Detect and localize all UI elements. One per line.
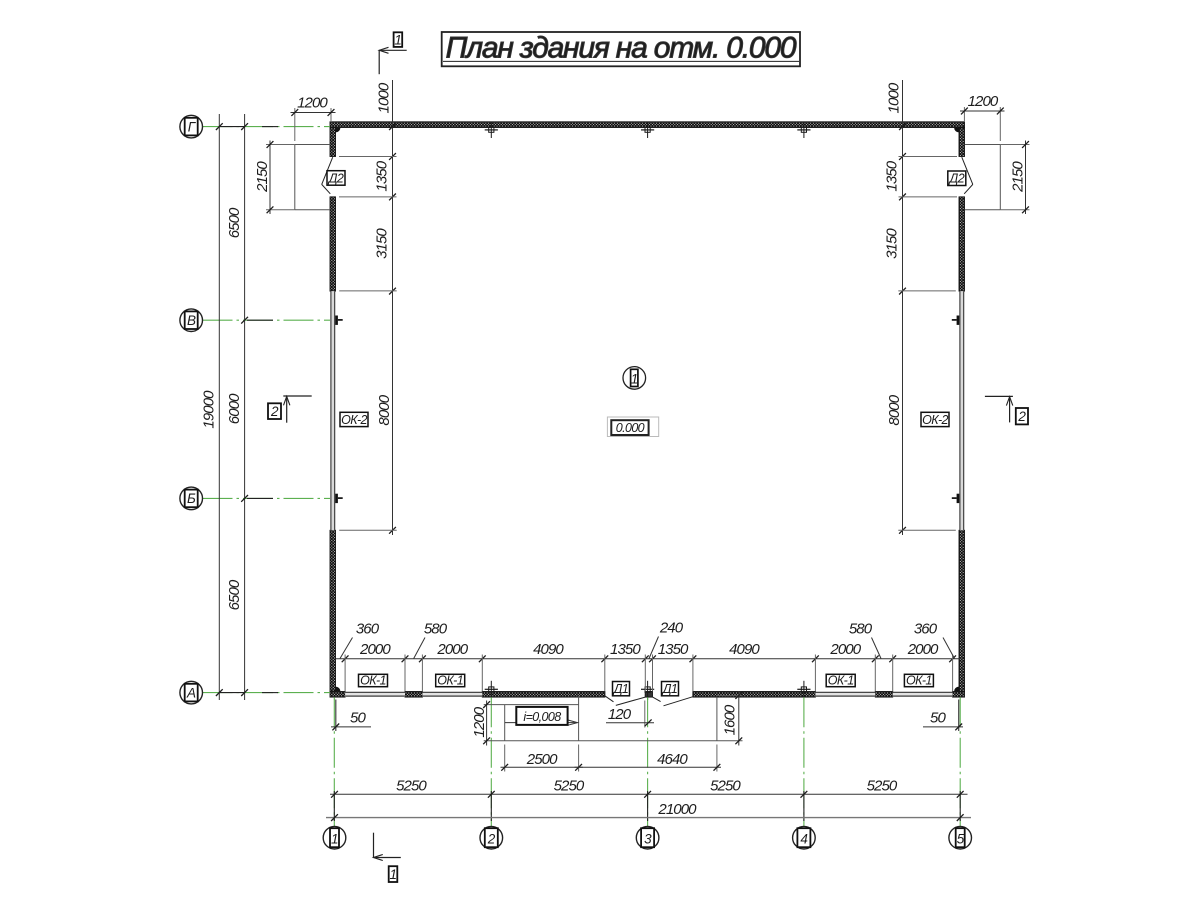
svg-text:240: 240 [659, 620, 684, 637]
svg-text:21000: 21000 [657, 801, 697, 818]
svg-text:1: 1 [631, 371, 638, 386]
svg-text:580: 580 [849, 621, 873, 638]
svg-text:А: А [186, 685, 196, 700]
svg-text:1600: 1600 [722, 704, 739, 735]
svg-text:3150: 3150 [373, 228, 390, 259]
svg-text:1350: 1350 [373, 160, 390, 191]
svg-text:Д1: Д1 [661, 682, 678, 696]
svg-text:4640: 4640 [657, 751, 688, 768]
svg-text:5250: 5250 [867, 778, 898, 795]
svg-text:2: 2 [487, 832, 496, 847]
svg-text:1200: 1200 [471, 706, 488, 737]
svg-text:2: 2 [1017, 409, 1026, 424]
svg-text:19000: 19000 [201, 390, 218, 429]
svg-text:120: 120 [608, 706, 632, 723]
svg-text:ОК-1: ОК-1 [437, 674, 463, 688]
svg-text:1350: 1350 [658, 641, 689, 658]
svg-text:2: 2 [270, 404, 279, 419]
svg-text:2000: 2000 [907, 641, 939, 658]
svg-text:В: В [187, 313, 196, 328]
svg-text:5250: 5250 [396, 778, 427, 795]
svg-text:1: 1 [389, 867, 396, 882]
svg-text:2500: 2500 [526, 751, 558, 768]
svg-text:ОК-1: ОК-1 [828, 674, 854, 688]
svg-text:2150: 2150 [1009, 161, 1026, 193]
svg-text:1200: 1200 [968, 93, 999, 110]
svg-text:360: 360 [914, 621, 938, 638]
svg-text:8000: 8000 [886, 394, 903, 425]
svg-text:2150: 2150 [254, 161, 271, 193]
svg-text:План здания на отм. 0.000: План здания на отм. 0.000 [446, 32, 797, 65]
svg-text:1: 1 [331, 832, 338, 847]
svg-text:5: 5 [957, 832, 965, 847]
svg-text:Д2: Д2 [948, 172, 965, 186]
svg-text:580: 580 [424, 621, 448, 638]
svg-text:4090: 4090 [729, 641, 760, 658]
svg-text:2000: 2000 [359, 641, 391, 658]
svg-text:ОК-1: ОК-1 [360, 674, 386, 688]
svg-text:Д2: Д2 [327, 171, 344, 185]
svg-text:6500: 6500 [226, 579, 243, 610]
svg-text:4090: 4090 [533, 641, 564, 658]
svg-text:ОК-1: ОК-1 [906, 674, 932, 688]
svg-text:2000: 2000 [436, 641, 468, 658]
svg-text:50: 50 [930, 709, 946, 726]
svg-text:4: 4 [800, 832, 807, 847]
svg-text:ОК-2: ОК-2 [922, 413, 948, 427]
svg-text:50: 50 [350, 709, 366, 726]
svg-text:6500: 6500 [226, 207, 243, 238]
svg-text:1200: 1200 [297, 95, 328, 112]
svg-text:8000: 8000 [376, 394, 393, 425]
svg-text:2000: 2000 [829, 641, 861, 658]
svg-text:0.000: 0.000 [616, 421, 645, 435]
svg-text:1350: 1350 [610, 641, 641, 658]
svg-text:3150: 3150 [883, 228, 900, 259]
svg-text:5250: 5250 [710, 778, 741, 795]
svg-text:1350: 1350 [883, 160, 900, 191]
svg-text:1000: 1000 [375, 82, 392, 113]
svg-text:ОК-2: ОК-2 [341, 413, 367, 427]
svg-text:5250: 5250 [554, 778, 585, 795]
svg-text:1000: 1000 [885, 82, 902, 113]
svg-text:i=0,008: i=0,008 [523, 710, 561, 724]
svg-text:1: 1 [394, 32, 401, 47]
svg-text:Д1: Д1 [612, 682, 629, 696]
svg-text:Б: Б [187, 491, 196, 506]
svg-text:3: 3 [644, 832, 652, 847]
svg-text:360: 360 [356, 621, 380, 638]
svg-text:6000: 6000 [226, 393, 243, 424]
